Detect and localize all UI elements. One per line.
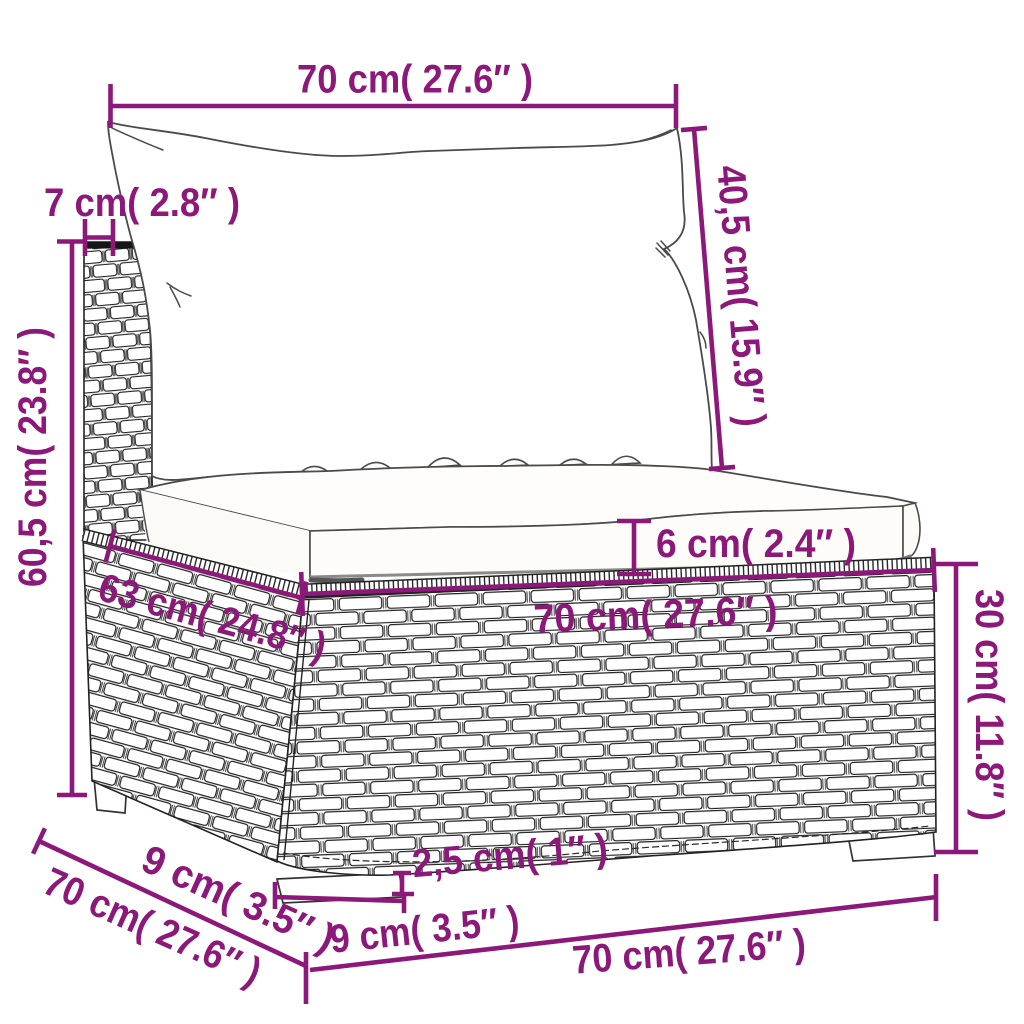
svg-text:30 cm( 11.8″ ): 30 cm( 11.8″ ) (967, 589, 1011, 821)
svg-text:7 cm( 2.8″ ): 7 cm( 2.8″ ) (44, 181, 240, 225)
svg-text:70 cm( 27.6″ ): 70 cm( 27.6″ ) (297, 58, 533, 102)
svg-text:60,5 cm( 23.8″ ): 60,5 cm( 23.8″ ) (11, 327, 55, 587)
svg-text:70 cm( 27.6″ ): 70 cm( 27.6″ ) (533, 588, 779, 641)
svg-text:6 cm( 2.4″ ): 6 cm( 2.4″ ) (656, 522, 856, 566)
